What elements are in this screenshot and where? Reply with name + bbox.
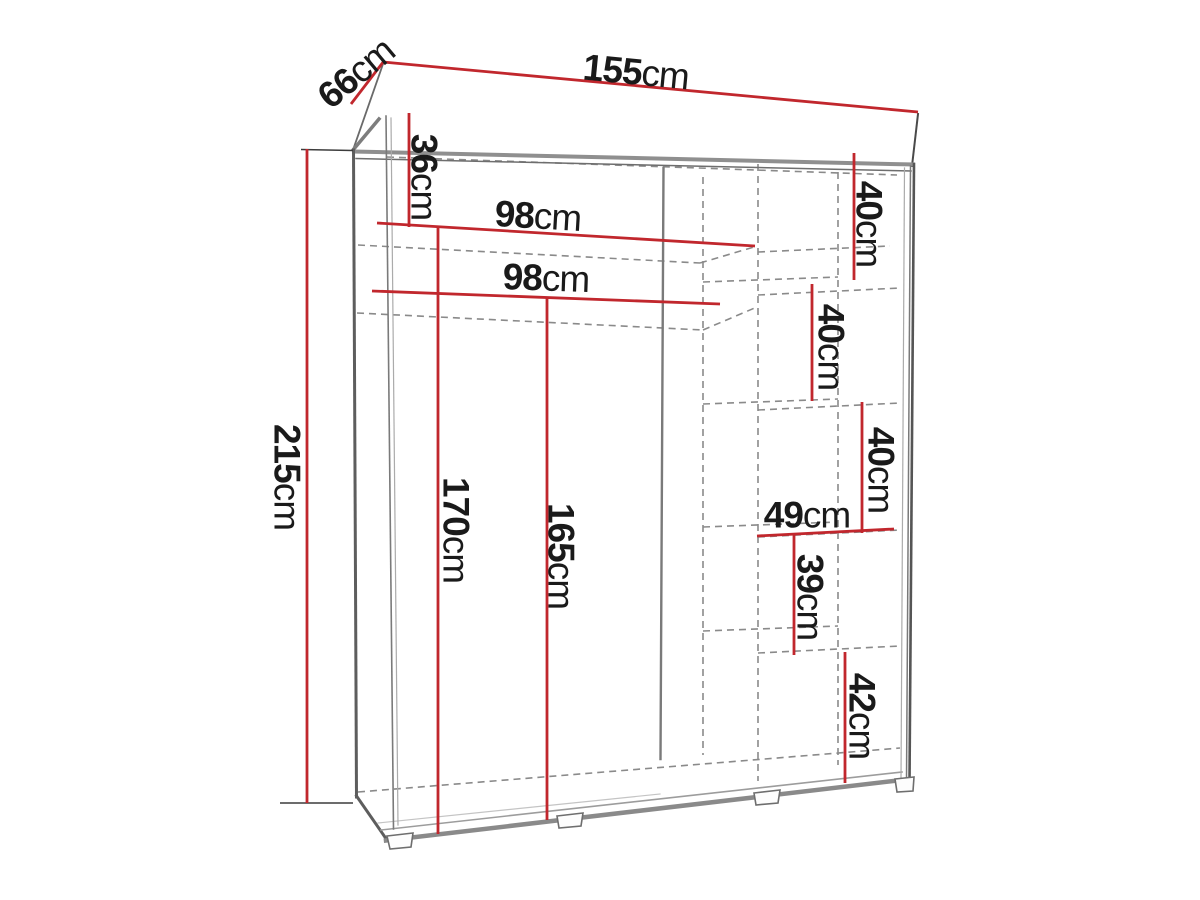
dim-label-40cm-3: 40cm bbox=[863, 427, 900, 513]
dim-label-155cm: 155cm bbox=[581, 49, 690, 96]
dim-label-49cm: 49cm bbox=[764, 497, 850, 534]
dim-label-42cm: 42cm bbox=[844, 673, 881, 759]
dim-label-165cm: 165cm bbox=[543, 503, 580, 609]
dim-label-98cm-lower: 98cm bbox=[502, 258, 590, 298]
dim-label-170cm: 170cm bbox=[438, 477, 475, 583]
dim-label-215cm: 215cm bbox=[269, 424, 306, 530]
dim-label-39cm: 39cm bbox=[792, 554, 829, 640]
dimension-diagram: 155cm 66cm 36cm 98cm 98cm 215cm 170cm 16… bbox=[0, 0, 1200, 900]
dim-label-98cm-upper: 98cm bbox=[494, 195, 583, 237]
wardrobe-line-drawing bbox=[0, 0, 1200, 900]
dim-label-40cm-1: 40cm bbox=[851, 181, 888, 267]
dimension-lines bbox=[307, 61, 918, 834]
dim-label-36cm: 36cm bbox=[406, 134, 443, 220]
dim-label-40cm-2: 40cm bbox=[813, 304, 850, 390]
